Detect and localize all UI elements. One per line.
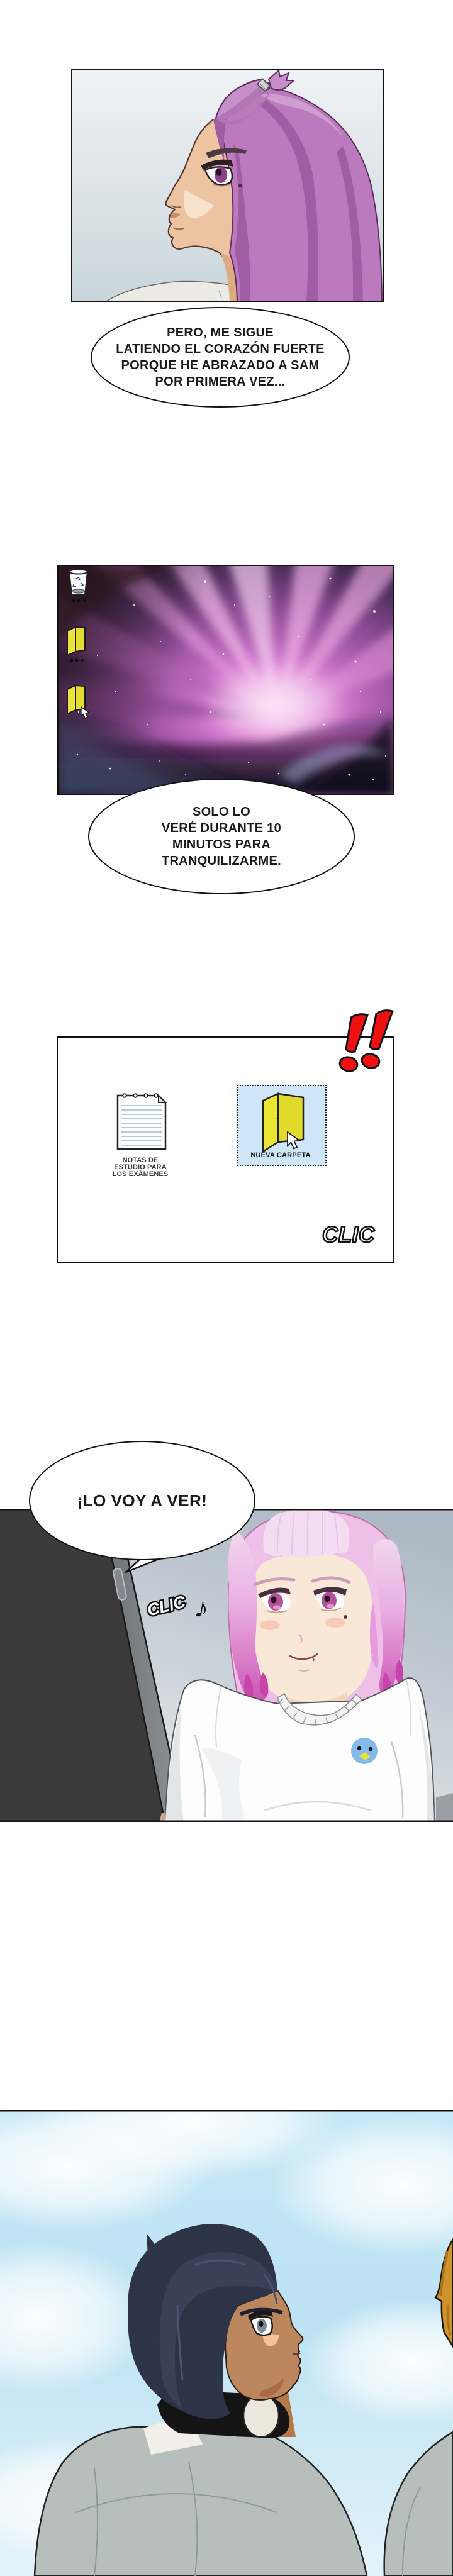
svg-text:♪: ♪: [192, 1592, 211, 1624]
svg-text:CLIC: CLIC: [145, 1592, 187, 1619]
